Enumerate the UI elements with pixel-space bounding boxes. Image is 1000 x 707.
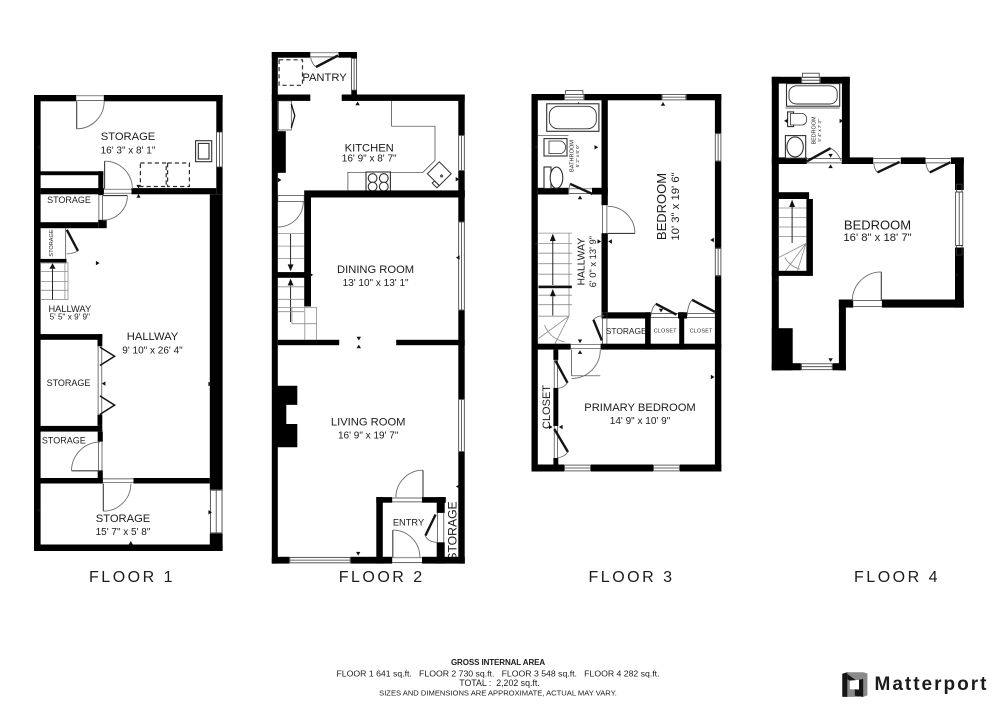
- svg-text:STORAGE: STORAGE: [47, 378, 91, 388]
- svg-text:5' 2" x 8' 0": 5' 2" x 8' 0": [575, 144, 580, 167]
- svg-text:FLOOR 1 641 sq.ft. FLOOR 2 7: FLOOR 1 641 sq.ft. FLOOR 2 730 sq.ft. FL…: [336, 668, 659, 678]
- svg-text:16' 9" x 8' 7": 16' 9" x 8' 7": [342, 154, 397, 165]
- svg-text:LIVING ROOM: LIVING ROOM: [331, 417, 406, 429]
- svg-text:CLOSET: CLOSET: [690, 329, 713, 335]
- svg-text:STORAGE: STORAGE: [47, 195, 91, 205]
- svg-text:ENTRY: ENTRY: [393, 517, 424, 527]
- svg-text:FLOOR 2: FLOOR 2: [339, 569, 425, 586]
- svg-text:6' 0" x 13' 9": 6' 0" x 13' 9": [587, 236, 598, 287]
- svg-text:10' 3" x 19' 6": 10' 3" x 19' 6": [670, 172, 682, 240]
- svg-text:STORAGE: STORAGE: [445, 501, 459, 560]
- svg-text:STORAGE: STORAGE: [96, 513, 151, 525]
- svg-text:9' 10" x 26' 4": 9' 10" x 26' 4": [122, 346, 183, 357]
- svg-text:GROSS INTERNAL AREA: GROSS INTERNAL AREA: [451, 658, 545, 667]
- svg-text:CLOSET: CLOSET: [541, 385, 553, 429]
- svg-text:CLOSET: CLOSET: [654, 329, 677, 335]
- svg-text:PANTRY: PANTRY: [302, 72, 347, 84]
- svg-text:Matterport: Matterport: [875, 674, 989, 695]
- svg-text:5' 5" x 9' 9": 5' 5" x 9' 9": [50, 313, 90, 322]
- svg-text:FLOOR 1: FLOOR 1: [89, 569, 175, 586]
- svg-text:HALLWAY: HALLWAY: [127, 331, 179, 343]
- svg-text:FLOOR 4: FLOOR 4: [854, 569, 940, 586]
- svg-text:FLOOR 3: FLOOR 3: [589, 569, 675, 586]
- svg-text:STORAGE: STORAGE: [42, 435, 86, 445]
- svg-text:16' 8" x 18' 7": 16' 8" x 18' 7": [843, 232, 911, 244]
- svg-text:STORAGE: STORAGE: [101, 131, 156, 143]
- svg-text:BEDROOM: BEDROOM: [844, 217, 911, 232]
- svg-text:SIZES AND DIMENSIONS ARE APPRO: SIZES AND DIMENSIONS ARE APPROXIMATE, AC…: [379, 689, 617, 698]
- svg-text:STORAGE: STORAGE: [49, 229, 55, 257]
- svg-text:TOTAL : 2,202 sq.ft.: TOTAL : 2,202 sq.ft.: [459, 678, 540, 688]
- svg-text:PRIMARY BEDROOM: PRIMARY BEDROOM: [584, 402, 695, 414]
- svg-text:15' 7" x 5' 8": 15' 7" x 5' 8": [96, 527, 151, 538]
- svg-text:14' 9" x 10' 9": 14' 9" x 10' 9": [610, 416, 671, 427]
- svg-text:16' 3" x 8' 1": 16' 3" x 8' 1": [101, 145, 156, 156]
- svg-text:STORAGE: STORAGE: [606, 326, 647, 336]
- svg-text:DINING ROOM: DINING ROOM: [337, 264, 414, 276]
- svg-text:5' 4" x 7' 3": 5' 4" x 7' 3": [817, 119, 822, 142]
- svg-text:13' 10" x 13' 1": 13' 10" x 13' 1": [343, 278, 409, 289]
- svg-text:16' 9" x 19' 7": 16' 9" x 19' 7": [338, 430, 399, 441]
- svg-text:BEDROOM: BEDROOM: [654, 173, 669, 240]
